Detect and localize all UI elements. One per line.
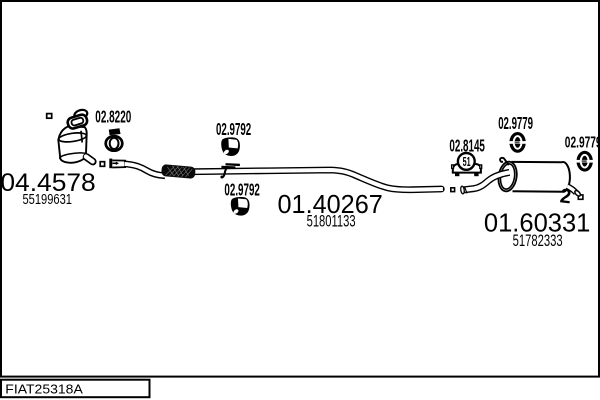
svg-text:02.8220: 02.8220 xyxy=(95,106,131,126)
svg-text:55199631: 55199631 xyxy=(23,192,73,208)
svg-text:51: 51 xyxy=(463,155,471,169)
svg-text:02.9792: 02.9792 xyxy=(216,119,251,139)
svg-text:51801133: 51801133 xyxy=(307,212,356,231)
svg-text:02.8145: 02.8145 xyxy=(449,135,485,155)
svg-text:FIAT25318A: FIAT25318A xyxy=(5,383,83,397)
svg-text:02.9792: 02.9792 xyxy=(224,180,260,200)
svg-text:02.9779: 02.9779 xyxy=(565,135,600,152)
svg-text:2: 2 xyxy=(559,185,573,208)
svg-text:02.9779: 02.9779 xyxy=(498,113,533,133)
svg-text:51782333: 51782333 xyxy=(513,231,563,250)
